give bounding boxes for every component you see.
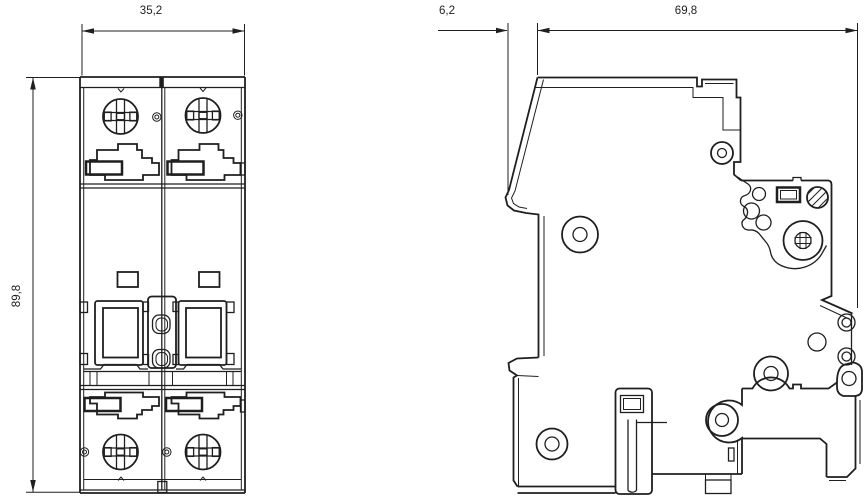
screw-boss (562, 217, 598, 253)
din-clip-assembly (616, 389, 668, 495)
top-center-tab (159, 77, 164, 88)
label-window-pole2 (199, 272, 220, 287)
side-front-depth-label: 6,2 (439, 5, 455, 17)
label-windows (118, 272, 220, 287)
drawing-canvas: 35,2 89,8 (0, 0, 867, 501)
housing-hole (808, 333, 826, 351)
screw-boss (711, 142, 733, 164)
front-height-label: 89,8 (11, 285, 23, 307)
side-depth-dimension: 69,8 (538, 5, 858, 308)
terminal-screw-top-left (103, 99, 138, 134)
screw-boss (754, 357, 788, 391)
hatched-screw (800, 180, 834, 214)
toggle-assembly (80, 297, 234, 369)
rivet (153, 113, 161, 121)
terminal-screw-bottom-right (186, 435, 221, 470)
front-width-dimension: 35,2 (82, 5, 245, 76)
mounting-foot-pad (706, 480, 732, 494)
din-claw-foot (837, 363, 862, 397)
arrowhead-right (846, 28, 858, 33)
terminal-screw-top-right (186, 98, 221, 133)
screw-boss (706, 404, 738, 436)
toggle-handle-pole1 (103, 308, 138, 358)
terminal-screw-bottom-left (103, 435, 138, 470)
screw-boss (537, 429, 568, 460)
pole-shaft (784, 221, 823, 260)
mechanism-details (537, 142, 835, 460)
clamp-bottom-pole1 (85, 393, 160, 419)
front-view: 35,2 89,8 (11, 5, 245, 493)
front-width-label: 35,2 (140, 5, 162, 17)
side-front-depth-dimension: 6,2 (438, 5, 508, 195)
label-window-pole1 (118, 272, 139, 287)
arrowhead-right (233, 28, 245, 34)
side-view: 6,2 69,8 (438, 5, 862, 494)
arrowhead-down (30, 480, 36, 492)
arrowhead-up (30, 78, 36, 90)
front-height-dimension: 89,8 (11, 78, 80, 493)
arrowhead-left (538, 28, 550, 33)
rivet (80, 448, 88, 456)
rivet (234, 111, 242, 119)
rivet (163, 448, 171, 456)
side-depth-label: 69,8 (675, 5, 697, 17)
clamp-top-pole1 (86, 144, 159, 180)
dimension-drawing: 35,2 89,8 (0, 0, 867, 501)
clamp-bottom-pole2 (166, 393, 241, 419)
arrowhead-right (496, 28, 508, 33)
arrowhead-left (82, 28, 94, 34)
clamp-top-pole2 (168, 144, 241, 180)
toggle-handle-pole2 (186, 308, 221, 358)
